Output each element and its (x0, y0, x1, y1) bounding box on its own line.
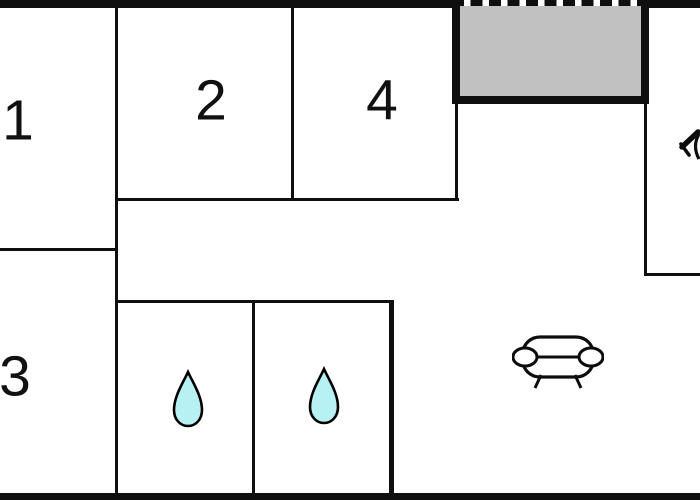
wall-bathrooms-right (389, 300, 394, 493)
wall-room1-room3-divider (0, 248, 118, 251)
room-2-label: 2 (195, 73, 227, 130)
room-1-label: 1 (2, 93, 34, 150)
room-3-label: 3 (0, 349, 31, 406)
wall-kitchen-bottom (644, 273, 700, 276)
wall-bottom (0, 493, 700, 500)
water-drop-icon (170, 369, 206, 429)
terrace-area (452, 0, 649, 104)
wall-bathrooms-divider (252, 300, 255, 493)
water-drop-icon (306, 366, 342, 426)
wall-top-right (645, 0, 700, 8)
floor-plan: 1 2 3 4 (0, 0, 700, 500)
cutlery-icon (674, 124, 700, 176)
wall-rooms24-bottom (115, 198, 459, 201)
sofa-icon (512, 335, 604, 391)
wall-kitchen-left (644, 104, 647, 276)
wall-room2-room4-divider (291, 8, 294, 200)
wall-room4-right (455, 101, 458, 201)
wall-top-left (0, 0, 456, 8)
room-4-label: 4 (366, 73, 398, 130)
